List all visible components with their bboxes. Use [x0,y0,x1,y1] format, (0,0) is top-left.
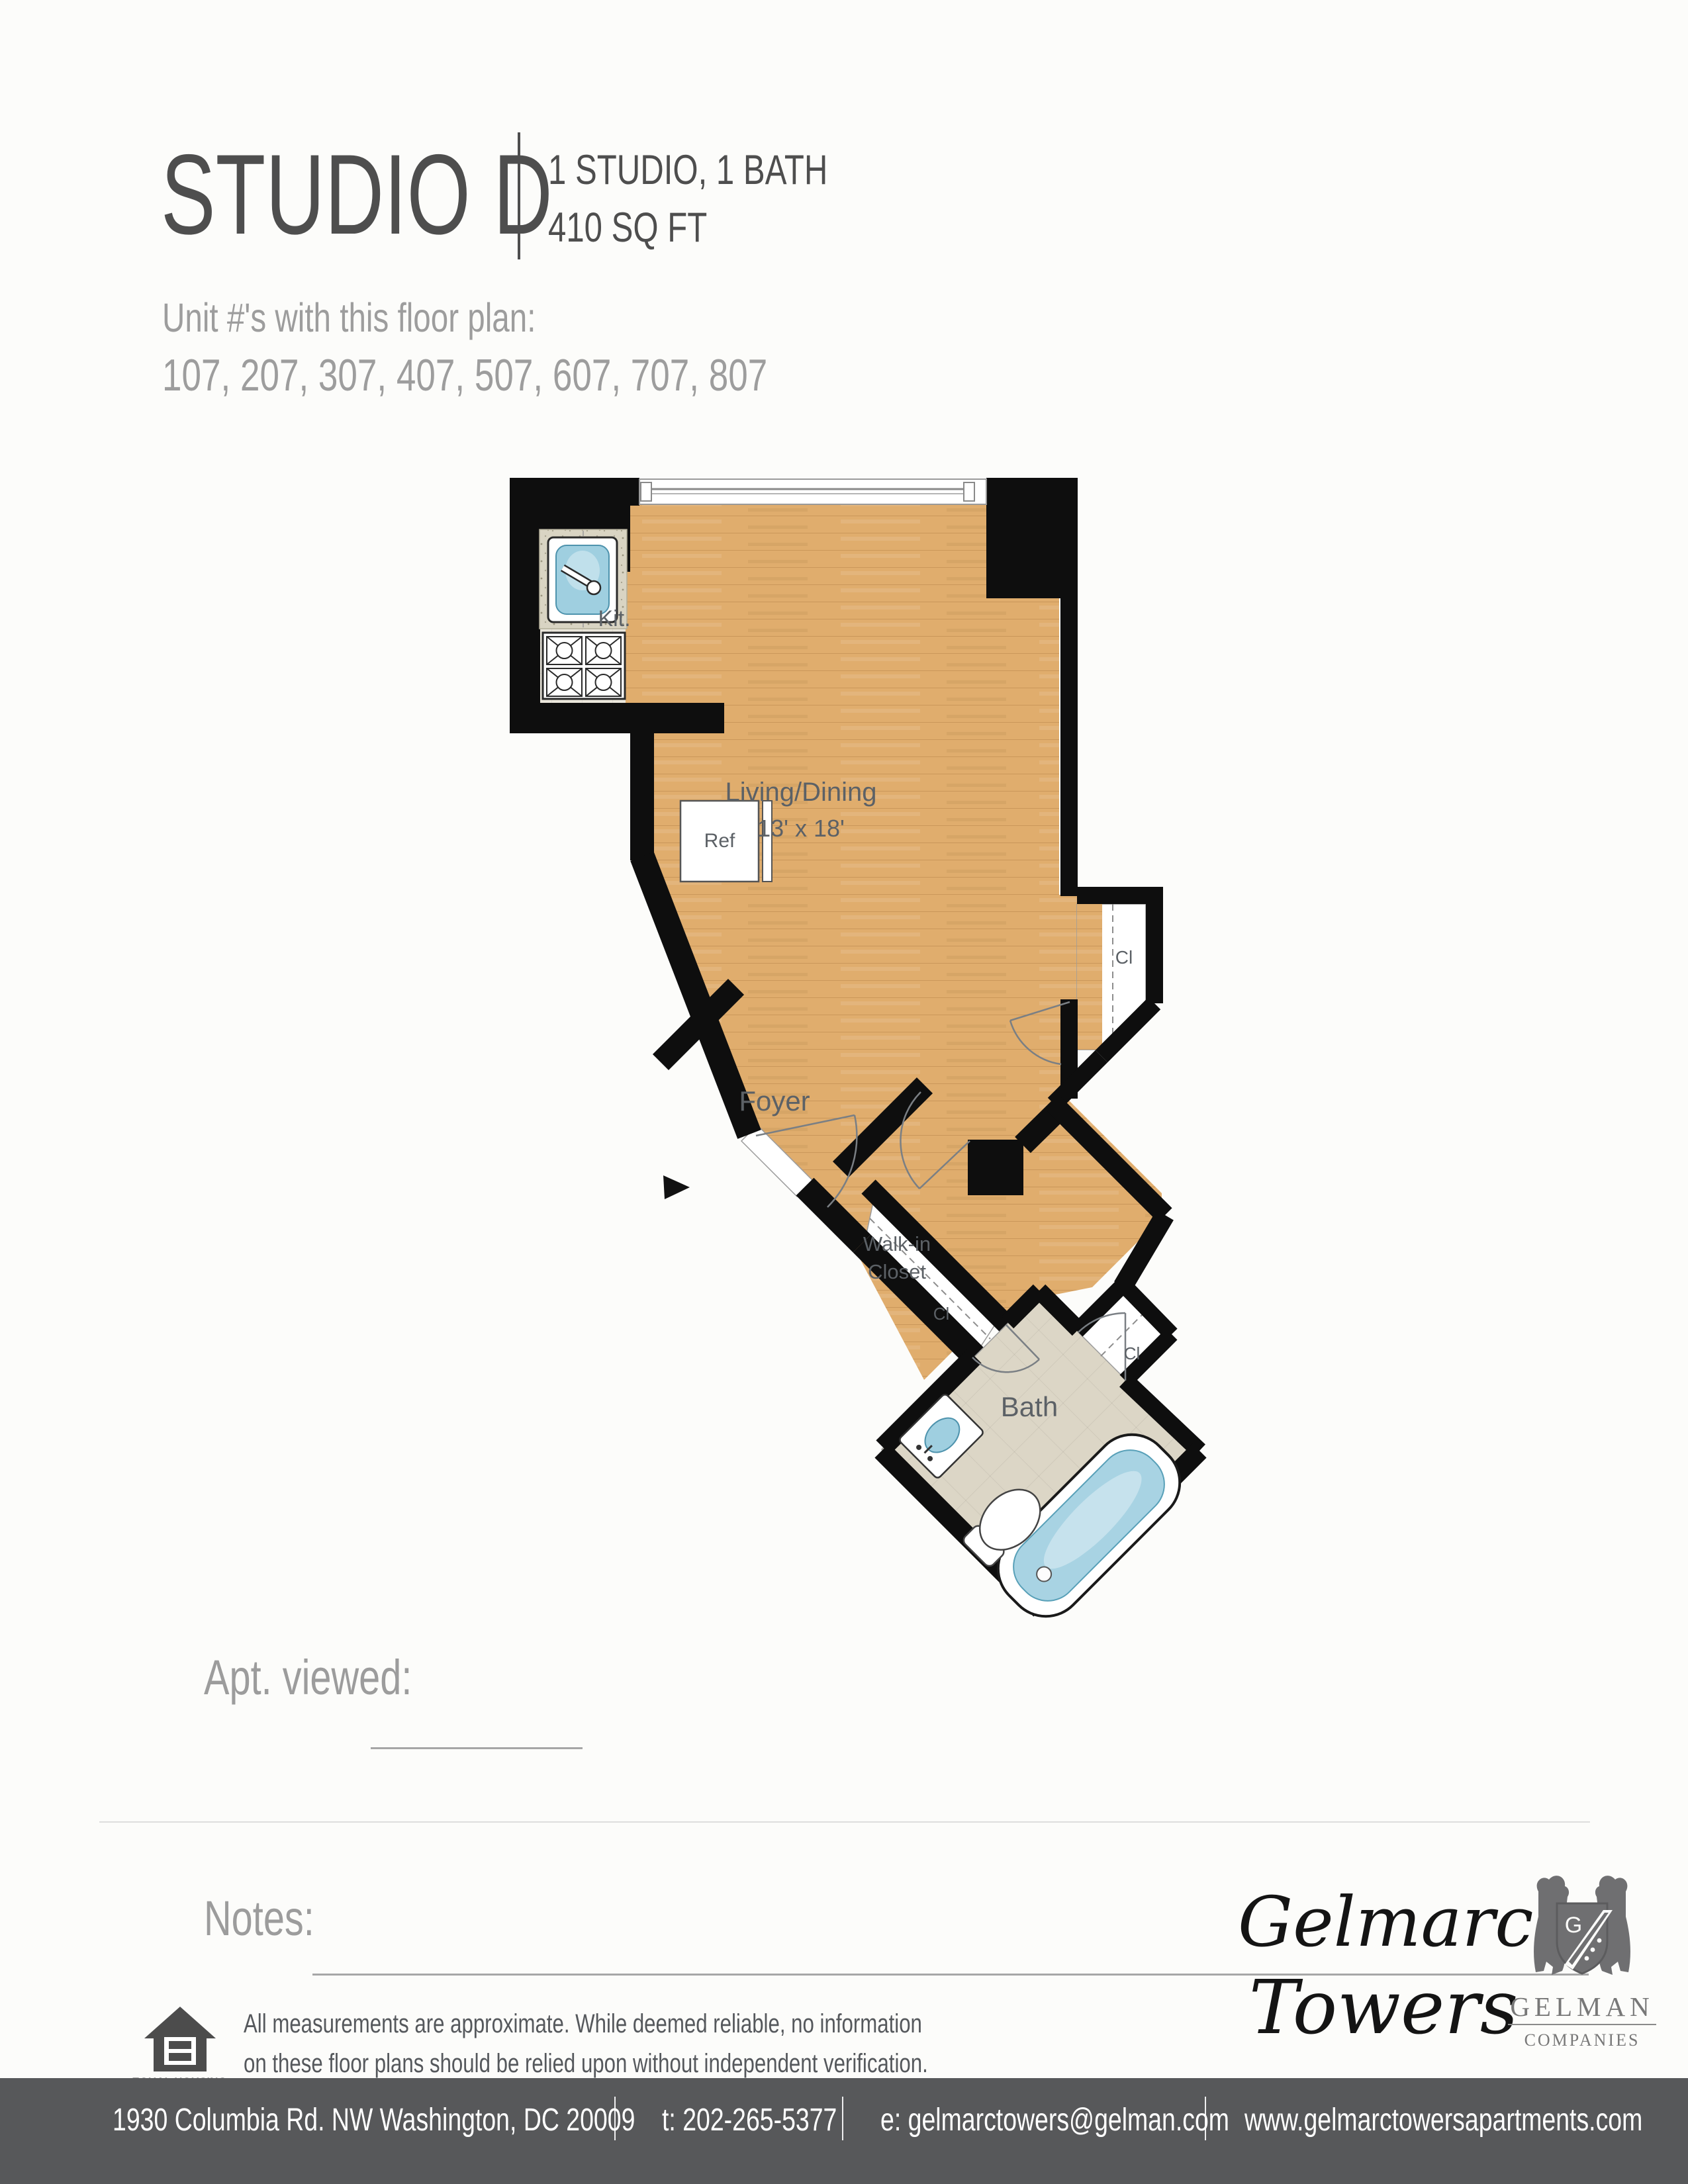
footer-website: www.gelmarctowersapartments.com [1244,2102,1688,2138]
living-dims-label: 13' x 18' [757,815,845,842]
section-divider-line [99,1821,1590,1823]
stove [543,633,625,699]
kitchen-label: Kit. [598,606,630,631]
footer-separator [614,2097,616,2140]
footer-separator [842,2097,843,2140]
closet-bath-label: Cl [1124,1343,1141,1363]
apt-viewed-blank-line [371,1747,583,1749]
ref-label: Ref [704,830,735,852]
floorplan-flyer-page: STUDIO D 1 STUDIO, 1 BATH 410 SQ FT Unit… [0,0,1688,2184]
units-label: Unit #'s with this floor plan: [162,295,641,341]
walkin-label-line1: Walk-in [863,1232,931,1255]
spec-line-1: 1 STUDIO, 1 BATH [548,142,827,199]
window [639,479,986,504]
closet-corridor-label: Cl [933,1304,950,1324]
gelman-rule [1508,2024,1656,2025]
gelman-name: GELMAN [1501,1991,1663,2023]
page-title-text: STUDIO D [161,138,553,251]
footer-phone: t: 202-265-5377 [662,2102,886,2138]
bath-label: Bath [1001,1391,1058,1422]
gelman-monogram: G [1565,1913,1582,1938]
notes-label: Notes: [204,1890,346,1946]
footer-separator [1205,2097,1206,2140]
walkin-label-line2: Closet [868,1260,926,1283]
apt-viewed-label: Apt. viewed: [204,1649,471,1706]
closet-right-label: Cl [1115,947,1133,968]
floor-plan: Kit. Ref Living/Dining 13' x 18' Cl Foye… [430,430,1258,1641]
units-list: 107, 207, 307, 407, 507, 607, 707, 807 [162,349,938,401]
equal-housing-icon [140,2004,220,2074]
spec-line-2: 410 SQ FT [548,199,707,257]
header-divider [518,132,520,259]
foyer-label: Foyer [739,1085,810,1116]
gelman-suffix: COMPANIES [1501,2030,1663,2050]
disclaimer-text: All measurements are approximate. While … [244,2004,1121,2083]
gelman-crest-icon: G [1509,1872,1655,1989]
unit-specs: 1 STUDIO, 1 BATH 410 SQ FT [548,142,906,257]
living-label: Living/Dining [725,778,876,807]
entry-arrow-icon [663,1175,690,1199]
gelmarc-towers-logo: Gelmarc Towers [1238,1888,1529,2045]
